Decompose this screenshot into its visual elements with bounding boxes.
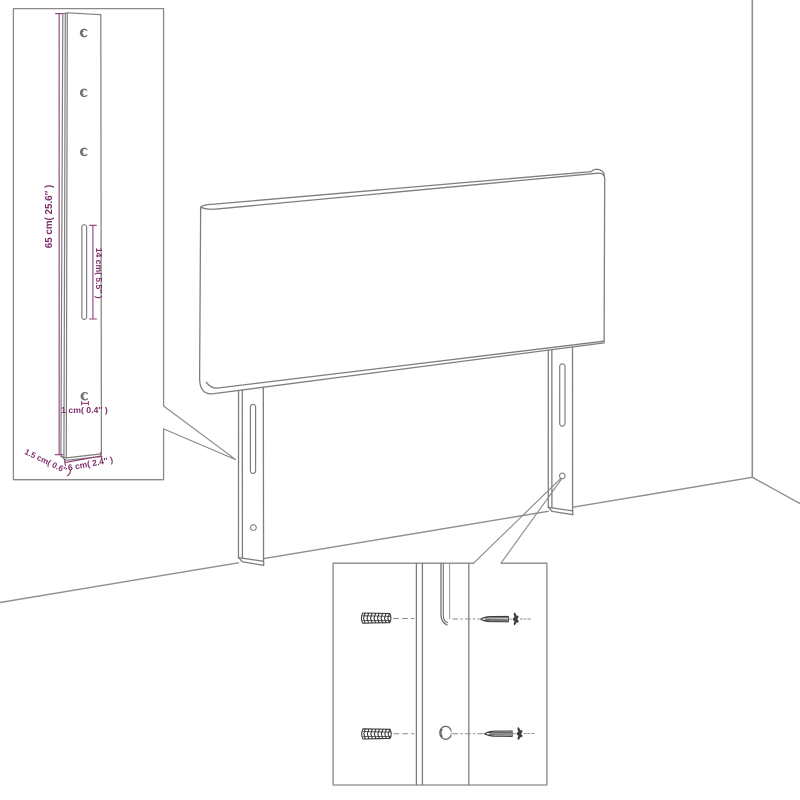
svg-text:14 cm( 5.5″ ): 14 cm( 5.5″ ) [94,248,104,299]
svg-text:1 cm( 0.4″ ): 1 cm( 0.4″ ) [61,405,108,415]
svg-text:65 cm( 25.6″ ): 65 cm( 25.6″ ) [44,185,55,249]
